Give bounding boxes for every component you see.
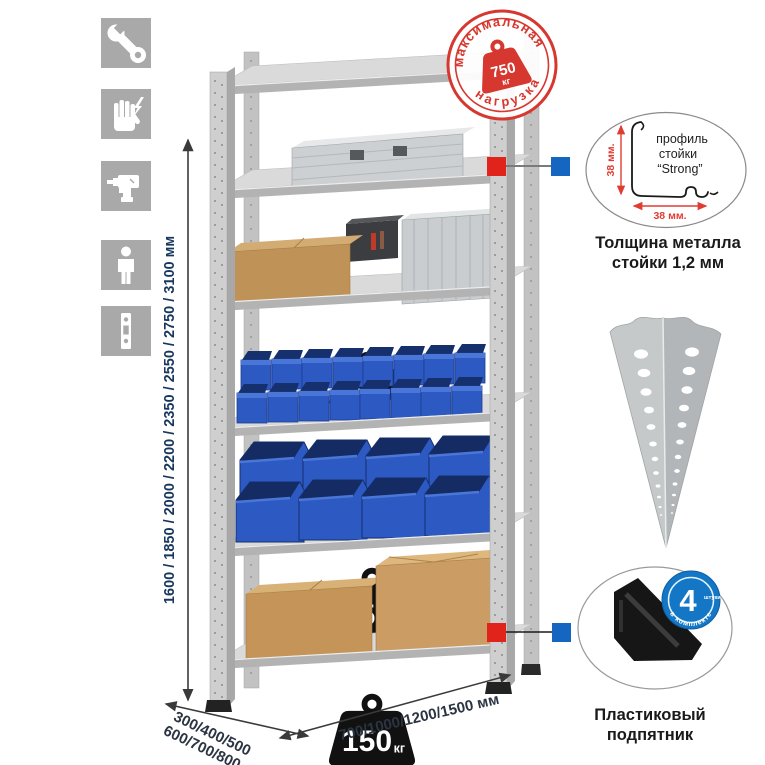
profile-vertical-dim-label: 38 мм. [605, 143, 617, 176]
profile-caption-2: стойки 1,2 мм [612, 254, 724, 272]
shelf-5 [218, 436, 532, 557]
profile-horizontal-dim-label: 38 мм. [653, 210, 686, 222]
shelf-4 [218, 344, 532, 437]
shelf-2 [218, 127, 532, 199]
height-dimension: 1600 / 1850 / 2000 / 2200 / 2350 / 2550 … [162, 140, 188, 700]
connector-blue-square-bottom [552, 623, 571, 642]
corner-post-render [610, 317, 721, 548]
gloves-icon [101, 89, 151, 139]
large-bins-front-row [236, 476, 493, 542]
shelf-3 [218, 208, 532, 311]
plastic-foot-detail: 4 штуки в комплекте Пластиковый подпятни… [578, 567, 732, 744]
height-dimension-label: 1600 / 1850 / 2000 / 2200 / 2350 / 2550 … [162, 236, 178, 604]
cardboard-box-right [376, 549, 505, 654]
kit-count-unit: штуки [704, 595, 721, 601]
profile-detail: 38 мм. 38 мм. профиль стойки “Strong” То… [586, 113, 746, 273]
rack-post-icon [101, 306, 151, 356]
infographic-svg: 150 кг [0, 0, 765, 765]
drill-icon [101, 161, 151, 211]
cardboard-box-left [246, 577, 385, 660]
profile-label-2: стойки [659, 147, 697, 161]
person-icon [101, 240, 151, 290]
kit-count-badge: 4 штуки в комплекте [662, 571, 721, 629]
profile-caption-1: Толщина металла [595, 234, 741, 252]
profile-label-3: “Strong” [657, 162, 702, 176]
assembly-icons [101, 18, 151, 356]
foot-caption-2: подпятник [607, 726, 694, 744]
front-left-foot [205, 700, 232, 712]
max-load-stamp: максимальная нагрузка 750 кг [437, 0, 568, 130]
rack-illustration [205, 32, 541, 765]
foot-caption-1: Пластиковый [594, 706, 705, 724]
kit-count-value: 4 [679, 583, 697, 618]
connector-blue-square-top [551, 157, 570, 176]
connector-red-square-bottom [487, 623, 506, 642]
wrench-icon [101, 18, 151, 68]
product-infographic: 150 кг [0, 0, 765, 765]
depth-dimension: 300/400/500 600/700/800 мм [161, 704, 308, 765]
profile-label-1: профиль [656, 132, 708, 146]
connector-red-square-top [487, 157, 506, 176]
